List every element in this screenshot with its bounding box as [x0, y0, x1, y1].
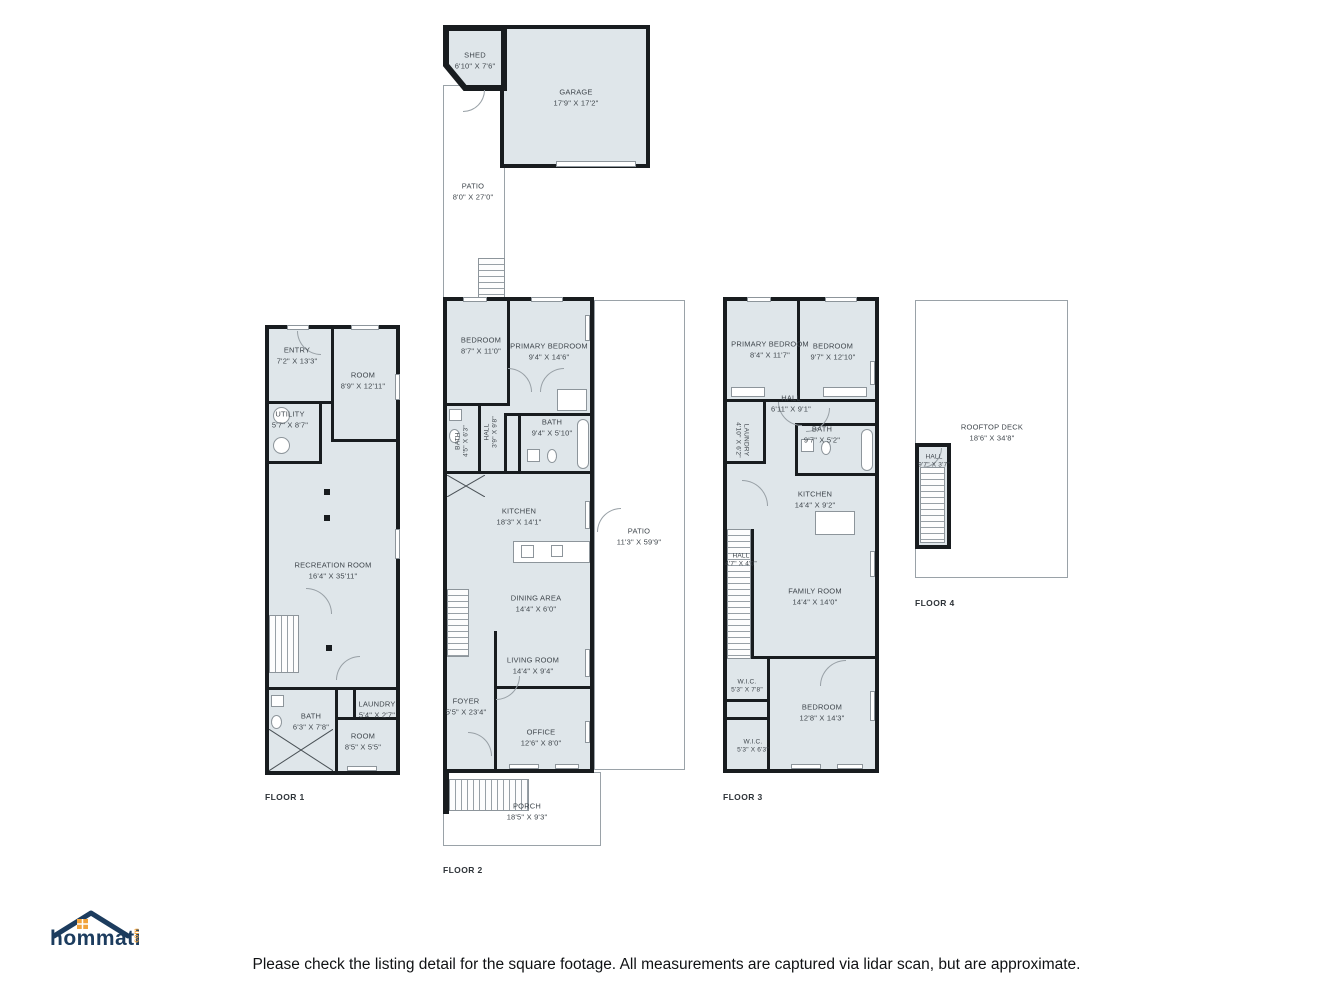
room-dims: 14'4" X 9'4"	[507, 666, 559, 677]
column	[324, 515, 330, 521]
room-name: HALL	[918, 454, 950, 462]
stairs	[447, 589, 469, 657]
room-label-primary-f3: PRIMARY BEDROOM 8'4" X 11'7"	[731, 340, 809, 361]
stairs	[920, 467, 945, 543]
room-dims: 12'6" X 8'0"	[521, 738, 562, 749]
room-label-recreation-f1: RECREATION ROOM 16'4" X 35'11"	[294, 561, 371, 582]
room-name: UTILITY	[272, 410, 308, 421]
room-label-bath-small-f2: BATH 4'5" X 6'3"	[455, 425, 472, 457]
room-dims: 8'0" X 27'0"	[453, 192, 494, 203]
bathtub-icon	[861, 429, 873, 471]
vanity-icon	[527, 449, 540, 462]
room-name: LAUNDRY	[741, 422, 749, 458]
floor2-label: FLOOR 2	[443, 865, 483, 875]
room-label-hall2-f3: HALL 4'7" X 4'0"	[725, 553, 757, 570]
wall	[795, 473, 875, 476]
room-dims: 5'7" X 8'7"	[272, 420, 308, 431]
room-label-office-f2: OFFICE 12'6" X 8'0"	[521, 728, 562, 749]
window	[825, 297, 857, 302]
room-name: BEDROOM	[811, 342, 856, 353]
room-label-laundry-f3: LAUNDRY 4'10" X 6'2"	[733, 422, 750, 458]
room-name: BEDROOM	[461, 336, 501, 347]
room-label-bath-f3: BATH 9'7" X 5'2"	[804, 425, 840, 446]
window	[347, 766, 377, 771]
room-dims: 14'4" X 6'0"	[511, 604, 562, 615]
window	[463, 297, 487, 302]
floor1-label: FLOOR 1	[265, 792, 305, 802]
room-label-bath-f2: BATH 9'4" X 5'10"	[532, 418, 573, 439]
window	[585, 721, 590, 743]
room-label-foyer-f2: FOYER 5'5" X 23'4"	[446, 697, 487, 718]
room-label-kitchen-f2: KITCHEN 18'3" X 14'1"	[497, 507, 542, 528]
room-dims: 8'9" X 12'11"	[341, 381, 385, 392]
room-name: BATH	[455, 425, 463, 457]
wall	[727, 699, 770, 702]
room-label-bath-f1: BATH 6'3" X 7'8"	[293, 712, 329, 733]
wall	[331, 439, 396, 442]
window	[791, 764, 821, 769]
room-label-hall-f3: HALL 6'11" X 9'1"	[771, 394, 811, 415]
room-name: RECREATION ROOM	[294, 561, 371, 572]
room-dims: 5'5" X 23'4"	[446, 707, 487, 718]
room-name: BATH	[532, 418, 573, 429]
wall	[795, 423, 798, 476]
room-name: KITCHEN	[795, 490, 836, 501]
room-name: PRIMARY BEDROOM	[510, 342, 588, 353]
wall	[269, 461, 322, 464]
closet-hatch	[447, 475, 485, 497]
room-dims: 3'9" X 9'8"	[492, 416, 500, 448]
brand-suffix: com	[134, 928, 141, 942]
room-label-laundry-f1: LAUNDRY 5'4" X 2'7"	[358, 700, 395, 721]
floor-plan-canvas: { "brand": {"name": "hommati", "suffix":…	[0, 0, 1333, 1000]
room-dims: 4'7" X 4'0"	[725, 561, 757, 569]
room-label-dining-f2: DINING AREA 14'4" X 6'0"	[511, 594, 562, 615]
window	[555, 764, 579, 769]
room-label-patio-f2: PATIO 11'3" X 59'9"	[617, 527, 661, 548]
room-dims: 8'5" X 5'5"	[345, 742, 381, 753]
wall	[335, 687, 338, 771]
room-name: W.I.C.	[731, 679, 763, 687]
wall	[443, 772, 449, 814]
window	[585, 649, 590, 677]
room-label-primary-f2: PRIMARY BEDROOM 9'4" X 14'6"	[510, 342, 588, 363]
room-name: LIVING ROOM	[507, 656, 559, 667]
kitchen-island	[815, 511, 855, 535]
room-label-garage: GARAGE 17'9" X 17'2"	[554, 88, 599, 109]
room-label-deck-f4: ROOFTOP DECK 18'6" X 34'8"	[961, 423, 1023, 444]
wall	[504, 413, 590, 416]
room-label-patio-top: PATIO 8'0" X 27'0"	[453, 182, 494, 203]
toilet-icon	[547, 449, 557, 463]
room-dims: 9'4" X 14'6"	[510, 352, 588, 363]
wall	[504, 413, 507, 473]
room-name: ROOM	[341, 371, 385, 382]
room-name: ROOFTOP DECK	[961, 423, 1023, 434]
window	[351, 325, 379, 330]
room-dims: 12'8" X 14'3"	[800, 713, 845, 724]
wall	[518, 413, 521, 473]
room-name: PORCH	[507, 802, 548, 813]
dresser-icon	[823, 387, 867, 397]
room-name: PATIO	[617, 527, 661, 538]
window	[395, 529, 400, 559]
room-dims: 18'5" X 9'3"	[507, 812, 548, 823]
room-name: SHED	[455, 51, 496, 62]
room-dims: 17'9" X 17'2"	[554, 98, 599, 109]
closet-hatch	[269, 729, 333, 771]
window	[287, 325, 309, 330]
room-dims: 18'3" X 14'1"	[497, 517, 542, 528]
column	[326, 645, 332, 651]
window	[531, 297, 563, 302]
room-dims: 5'4" X 2'7"	[358, 710, 395, 721]
room-label-shed: SHED 6'10" X 7'6"	[455, 51, 496, 72]
room-name: GARAGE	[554, 88, 599, 99]
stairs	[269, 615, 299, 673]
stairs	[727, 529, 751, 659]
room-dims: 6'10" X 7'6"	[455, 61, 496, 72]
wall	[331, 329, 334, 442]
room-label-hall-f4: HALL 9'7" X 3'7"	[918, 454, 950, 471]
sink-icon	[449, 409, 462, 421]
room-label-room-bottom-f1: ROOM 8'5" X 5'5"	[345, 732, 381, 753]
room-dims: 11'3" X 59'9"	[617, 537, 661, 548]
room-label-bedroom-f2: BEDROOM 8'7" X 11'0"	[461, 336, 501, 357]
floor3-label: FLOOR 3	[723, 792, 763, 802]
bed-icon	[557, 389, 587, 411]
room-label-bedroom2-f3: BEDROOM 12'8" X 14'3"	[800, 703, 845, 724]
brand-name: hommati	[50, 927, 141, 951]
room-label-bedroom-f3: BEDROOM 9'7" X 12'10"	[811, 342, 856, 363]
wall	[353, 687, 356, 720]
room-dims: 9'7" X 3'7"	[918, 462, 950, 470]
room-dims: 9'4" X 5'10"	[532, 428, 573, 439]
wall	[269, 687, 396, 690]
patio-stairs	[478, 258, 505, 298]
room-dims: 4'5" X 6'3"	[463, 425, 471, 457]
sink-icon	[551, 545, 563, 557]
room-dims: 8'4" X 11'7"	[731, 350, 809, 361]
room-dims: 18'6" X 34'8"	[961, 433, 1023, 444]
room-label-wic2-f3: W.I.C. 5'3" X 6'3"	[737, 739, 769, 756]
room-name: BATH	[804, 425, 840, 436]
window	[870, 361, 875, 385]
room-name: HALL	[771, 394, 811, 405]
room-dims: 8'7" X 11'0"	[461, 346, 501, 357]
window	[509, 764, 539, 769]
room-dims: 5'3" X 6'3"	[737, 747, 769, 755]
window	[870, 551, 875, 577]
room-dims: 9'7" X 5'2"	[804, 435, 840, 446]
room-name: FAMILY ROOM	[788, 587, 842, 598]
room-name: ROOM	[345, 732, 381, 743]
wall	[319, 401, 322, 464]
stove-icon	[521, 545, 534, 558]
window	[747, 297, 771, 302]
room-name: PATIO	[453, 182, 494, 193]
sink-icon	[271, 695, 284, 707]
window	[870, 691, 875, 721]
disclaimer-text: Please check the listing detail for the …	[0, 956, 1333, 974]
room-label-wic1-f3: W.I.C. 5'3" X 7'8"	[731, 679, 763, 696]
room-label-utility-f1: UTILITY 5'7" X 8'7"	[272, 410, 308, 431]
room-name: FOYER	[446, 697, 487, 708]
wall	[494, 631, 497, 769]
wall	[751, 529, 754, 659]
room-dims: 6'3" X 7'8"	[293, 722, 329, 733]
room-name: HALL	[725, 553, 757, 561]
room-label-living-f2: LIVING ROOM 14'4" X 9'4"	[507, 656, 559, 677]
garage-door	[556, 161, 636, 167]
room-name: BEDROOM	[800, 703, 845, 714]
room-label-hall-f2: HALL 3'9" X 9'8"	[484, 416, 501, 448]
room-dims: 9'7" X 12'10"	[811, 352, 856, 363]
room-label-kitchen-f3: KITCHEN 14'4" X 9'2"	[795, 490, 836, 511]
room-label-porch-f2: PORCH 18'5" X 9'3"	[507, 802, 548, 823]
room-label-family-f3: FAMILY ROOM 14'4" X 14'0"	[788, 587, 842, 608]
dryer-icon	[273, 437, 290, 454]
room-dims: 14'4" X 9'2"	[795, 500, 836, 511]
window	[585, 501, 590, 529]
bathtub-icon	[577, 419, 589, 469]
room-name: HALL	[484, 416, 492, 448]
room-name: W.I.C.	[737, 739, 769, 747]
wall	[447, 471, 590, 474]
room-dims: 6'11" X 9'1"	[771, 404, 811, 415]
room-label-entry-f1: ENTRY 7'2" X 13'3"	[277, 346, 318, 367]
room-dims: 4'10" X 6'2"	[733, 422, 741, 458]
wall	[763, 399, 766, 464]
room-label-room-top-f1: ROOM 8'9" X 12'11"	[341, 371, 385, 392]
room-dims: 14'4" X 14'0"	[788, 597, 842, 608]
room-name: OFFICE	[521, 728, 562, 739]
dresser-icon	[731, 387, 765, 397]
room-dims: 5'3" X 7'8"	[731, 687, 763, 695]
room-name: PRIMARY BEDROOM	[731, 340, 809, 351]
toilet-icon	[271, 715, 282, 729]
room-name: BATH	[293, 712, 329, 723]
wall	[727, 461, 766, 464]
column	[324, 489, 330, 495]
room-name: KITCHEN	[497, 507, 542, 518]
window	[395, 374, 400, 400]
wall	[727, 717, 770, 720]
wall	[478, 403, 481, 473]
window	[585, 315, 590, 341]
room-name: DINING AREA	[511, 594, 562, 605]
hommati-logo: hommati com	[46, 906, 142, 956]
room-name: ENTRY	[277, 346, 318, 357]
room-dims: 7'2" X 13'3"	[277, 356, 318, 367]
room-name: LAUNDRY	[358, 700, 395, 711]
floor4-label: FLOOR 4	[915, 598, 955, 608]
window	[837, 764, 863, 769]
room-dims: 16'4" X 35'11"	[294, 571, 371, 582]
